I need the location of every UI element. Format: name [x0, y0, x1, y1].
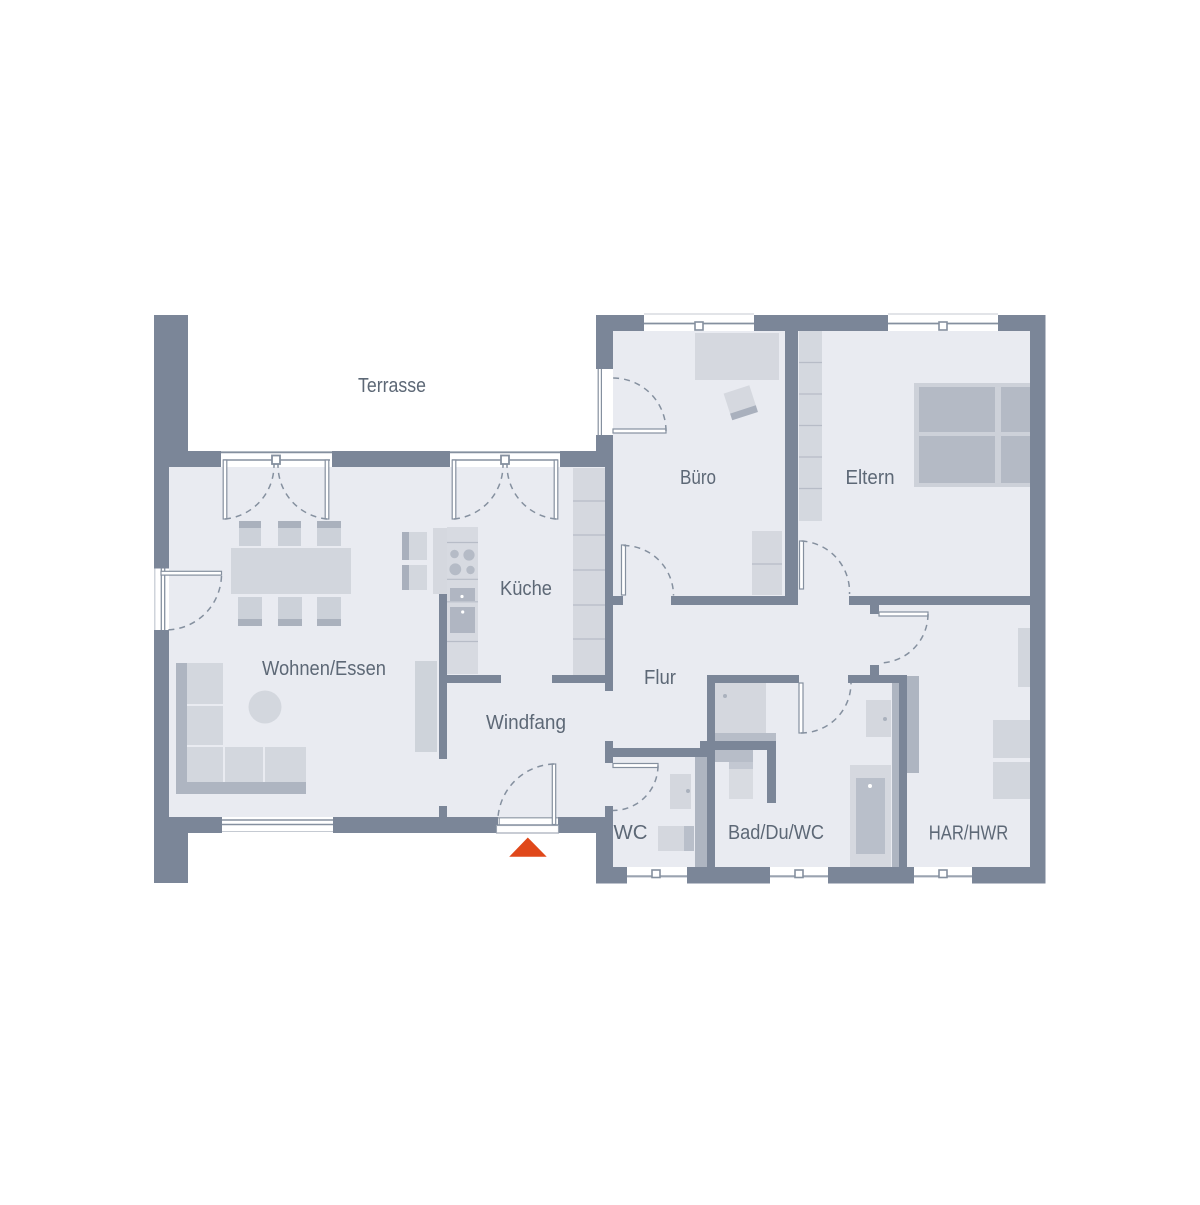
svg-text:HAR/HWR: HAR/HWR — [929, 823, 1009, 845]
svg-text:Flur: Flur — [644, 667, 676, 689]
svg-text:Küche: Küche — [500, 578, 552, 600]
svg-text:Eltern: Eltern — [846, 467, 895, 489]
svg-text:Windfang: Windfang — [486, 712, 566, 734]
svg-text:Bad/Du/WC: Bad/Du/WC — [728, 822, 824, 844]
svg-text:Wohnen/Essen: Wohnen/Essen — [262, 658, 386, 680]
svg-text:Büro: Büro — [680, 467, 716, 489]
svg-text:Terrasse: Terrasse — [358, 375, 426, 397]
svg-text:WC: WC — [614, 822, 648, 844]
